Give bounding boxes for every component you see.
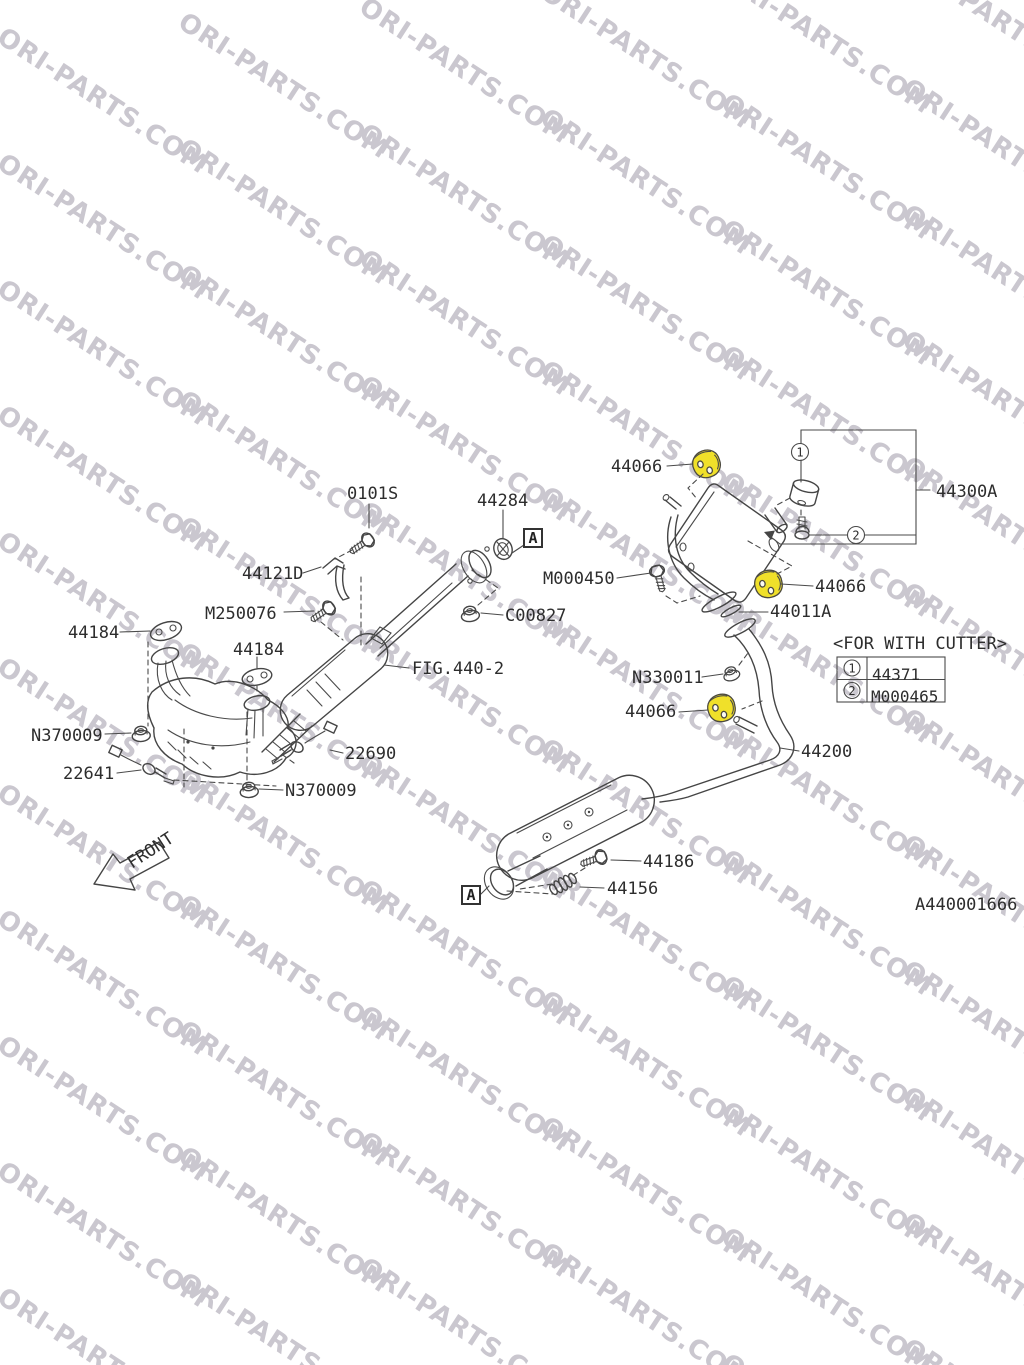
part-label-m250076: M250076	[205, 604, 277, 624]
screw-m250076	[307, 599, 338, 627]
part-label-44066-mid: 44066	[815, 577, 866, 597]
parts-diagram-page: ORI-PARTS.COMORI-PARTS.COMORI-PARTS.COMO…	[0, 0, 1024, 1365]
cutter-row1-part: 44371	[872, 665, 920, 684]
cutter-table: <FOR WITH CUTTER> 1 44371 2 M000465	[833, 634, 1007, 706]
cutter-row2-ref: 2	[848, 684, 855, 698]
nut-n330011	[721, 665, 741, 683]
part-label-n370009-left: N370009	[31, 726, 103, 746]
bracket-44121d	[323, 558, 349, 600]
part-labels: 0101S 44284 44121D M250076 44184 44184 F…	[31, 457, 997, 899]
cutter-table-title: <FOR WITH CUTTER>	[833, 634, 1007, 654]
part-label-44186: 44186	[643, 852, 694, 872]
part-label-44284: 44284	[477, 491, 528, 511]
leader-lines	[105, 464, 813, 894]
callout-2-badge: 2	[852, 529, 859, 543]
bolt-0101s	[346, 531, 377, 559]
fasteners	[109, 478, 820, 897]
clamp-44066-top	[690, 447, 723, 480]
hanger-clamps-44066	[690, 447, 784, 723]
nut-n370009-left	[131, 726, 150, 743]
sensor-22690	[272, 721, 337, 764]
part-label-44200: 44200	[801, 742, 852, 762]
part-label-44066-top: 44066	[611, 457, 662, 477]
hanger-bracket-44371	[788, 478, 820, 509]
gasket-44284	[491, 536, 515, 562]
callout-bracket-44300a: 1 2	[764, 430, 930, 544]
drawing-number: A440001666	[915, 895, 1017, 915]
part-label-n370009-bottom: N370009	[285, 781, 357, 801]
part-label-n330011: N330011	[632, 668, 704, 688]
part-label-0101s: 0101S	[347, 484, 398, 504]
screw-m000465	[795, 517, 809, 539]
cutter-row2-part: M000465	[871, 687, 938, 706]
clamp-44066-bottom	[706, 693, 737, 724]
front-label: FRONT	[124, 829, 178, 874]
part-label-44066-bottom: 44066	[625, 702, 676, 722]
part-label-22690: 22690	[345, 744, 396, 764]
part-label-fig440-2: FIG.440-2	[412, 659, 504, 679]
part-label-44184-left: 44184	[68, 623, 119, 643]
exhaust-system-diagram: 1 2	[0, 0, 1024, 1365]
part-label-44156: 44156	[607, 879, 658, 899]
part-label-c00827: C00827	[505, 606, 566, 626]
part-label-44121d: 44121D	[242, 564, 303, 584]
section-marker-a-top: A	[528, 529, 537, 547]
manifold-assembly	[148, 536, 515, 777]
nut-c00827	[460, 605, 480, 623]
cutter-row1-ref: 1	[848, 662, 855, 676]
section-marker-a-bottom: A	[466, 886, 475, 904]
part-label-44011a: 44011A	[770, 602, 831, 622]
part-label-44300a: 44300A	[936, 482, 997, 502]
front-direction: FRONT	[94, 829, 178, 890]
section-markers: A A	[462, 529, 542, 904]
part-label-22641: 22641	[63, 764, 114, 784]
part-label-44184-center: 44184	[233, 640, 284, 660]
part-label-m000450: M000450	[543, 569, 615, 589]
callout-1-badge: 1	[796, 446, 803, 460]
sensor-22641	[109, 745, 174, 784]
bolt-m000450	[648, 564, 669, 594]
